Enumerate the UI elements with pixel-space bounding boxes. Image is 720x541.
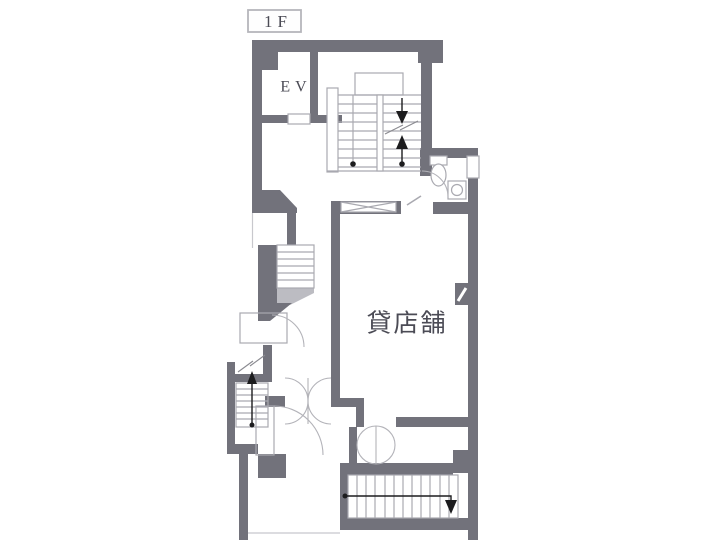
entrance-shutter-icon [341, 202, 396, 212]
stair-down-arrow-icon [396, 98, 408, 124]
stair-down-arrow-icon [445, 500, 457, 514]
stair-treads [327, 95, 421, 171]
stair-landing [355, 73, 403, 95]
floor-plan-canvas: 1F EV [0, 0, 720, 541]
double-swing-door-2 [357, 426, 395, 464]
wc-window-icon [467, 156, 479, 178]
elevator-label: EV [280, 79, 311, 96]
sink-icon [448, 181, 466, 199]
pipe-space [455, 283, 468, 305]
floor-label: 1F [264, 12, 292, 31]
toilet-icon [430, 156, 447, 186]
stair-path-dot [250, 423, 255, 428]
corridor-steps [277, 245, 314, 288]
stair-divider [377, 95, 383, 171]
stair-path-dot [350, 161, 356, 167]
stair-break-mark [238, 355, 265, 372]
double-swing-door-1 [285, 378, 331, 424]
stair-break-mark [385, 121, 418, 134]
floor-title-box: 1F [248, 10, 301, 32]
main-staircase [327, 73, 421, 172]
floor-plan-page: 1F EV [0, 0, 720, 541]
stair-path-dot [399, 161, 405, 167]
elevator-door-icon [288, 114, 310, 124]
shop-label: 貸店舗 [366, 310, 447, 338]
shop-room: 貸店舗 [341, 202, 468, 338]
exterior-stair-south [343, 475, 459, 518]
